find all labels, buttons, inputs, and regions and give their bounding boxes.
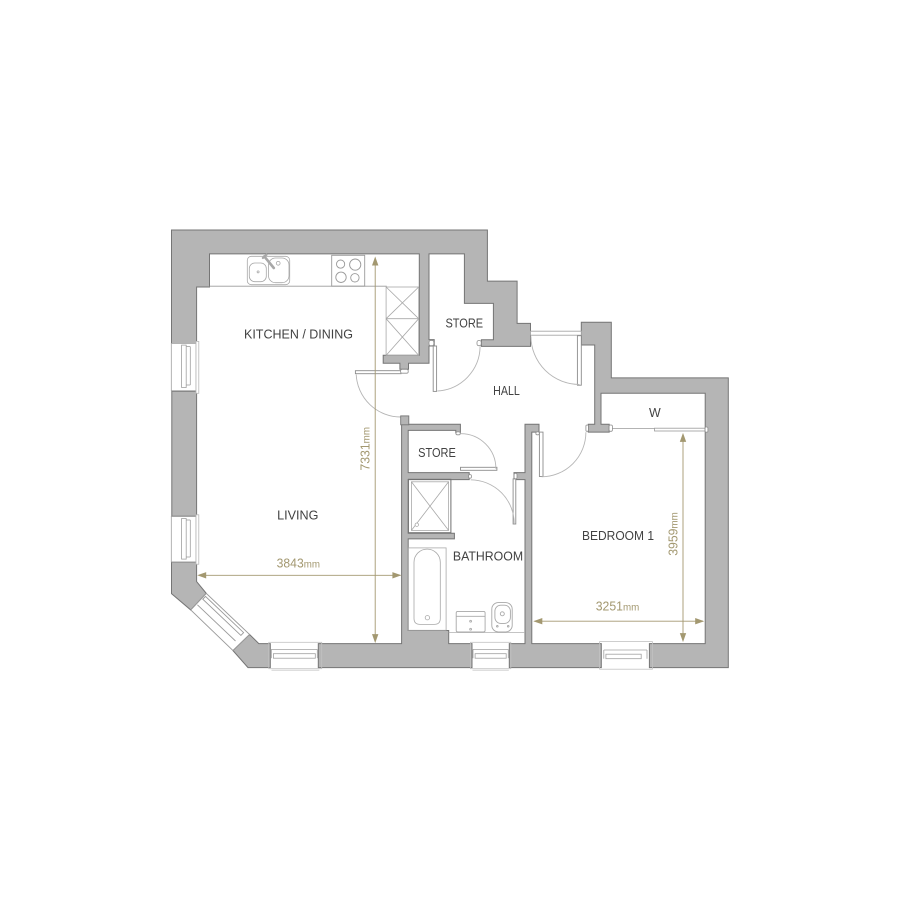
svg-text:HALL: HALL	[493, 383, 520, 398]
svg-text:W: W	[649, 405, 661, 420]
svg-text:BATHROOM: BATHROOM	[453, 548, 523, 563]
svg-text:KITCHEN / DINING: KITCHEN / DINING	[244, 327, 353, 342]
svg-text:BEDROOM 1: BEDROOM 1	[582, 528, 654, 543]
svg-text:STORE: STORE	[445, 316, 483, 331]
svg-text:7331mm: 7331mm	[358, 427, 372, 471]
svg-text:3251mm: 3251mm	[596, 600, 640, 614]
svg-text:STORE: STORE	[418, 445, 456, 460]
svg-text:3959mm: 3959mm	[667, 512, 681, 556]
svg-text:3843mm: 3843mm	[277, 557, 320, 571]
svg-text:LIVING: LIVING	[277, 507, 318, 522]
